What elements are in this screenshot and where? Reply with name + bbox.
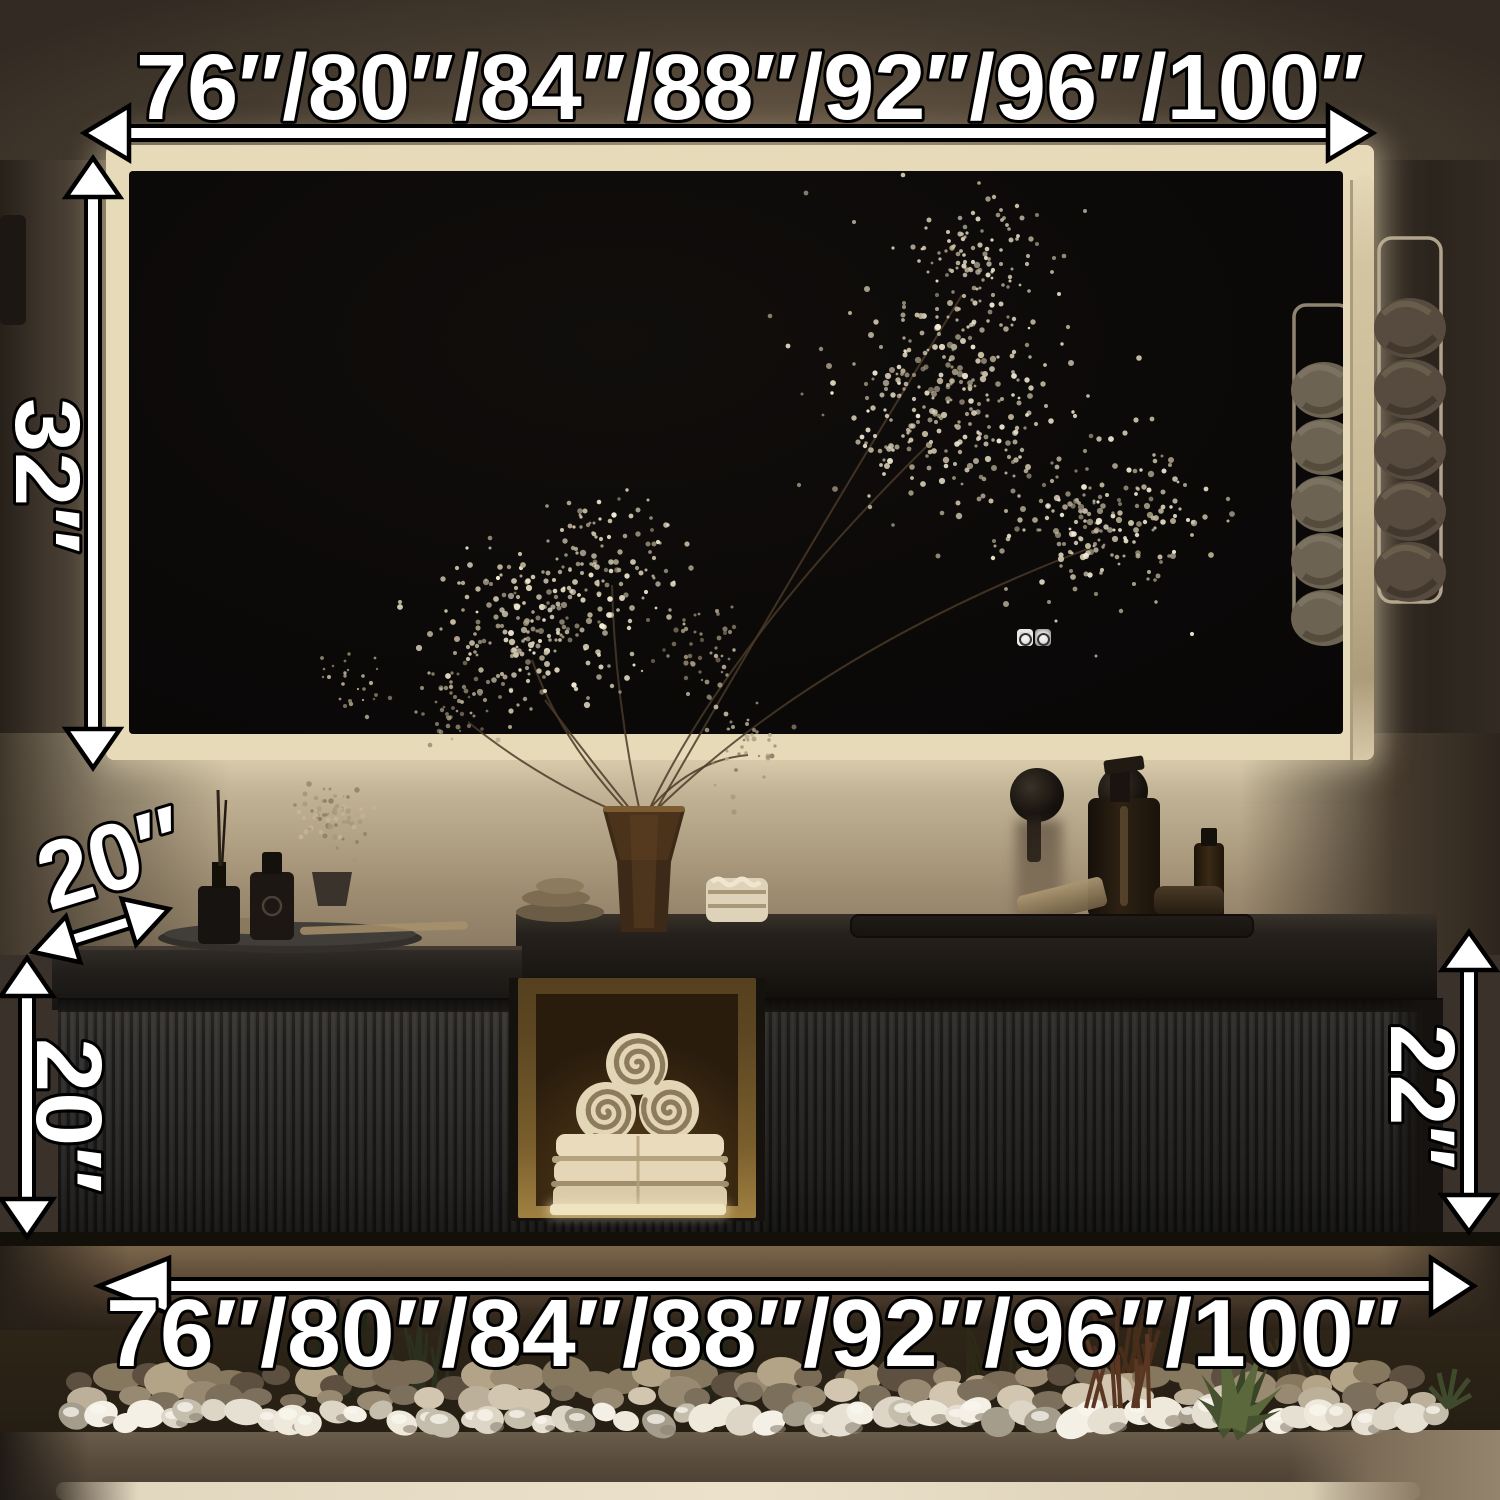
svg-text:22″: 22″ <box>1371 1024 1473 1169</box>
svg-text:20″: 20″ <box>17 1038 121 1193</box>
svg-text:20″: 20″ <box>25 786 198 931</box>
svg-text:76″/80″/84″/88″/92″/96″/100″: 76″/80″/84″/88″/92″/96″/100″ <box>136 35 1364 139</box>
svg-text:32″: 32″ <box>0 398 98 553</box>
svg-text:76″/80″/84″/88″/92″/96″/100″: 76″/80″/84″/88″/92″/96″/100″ <box>106 1280 1400 1387</box>
